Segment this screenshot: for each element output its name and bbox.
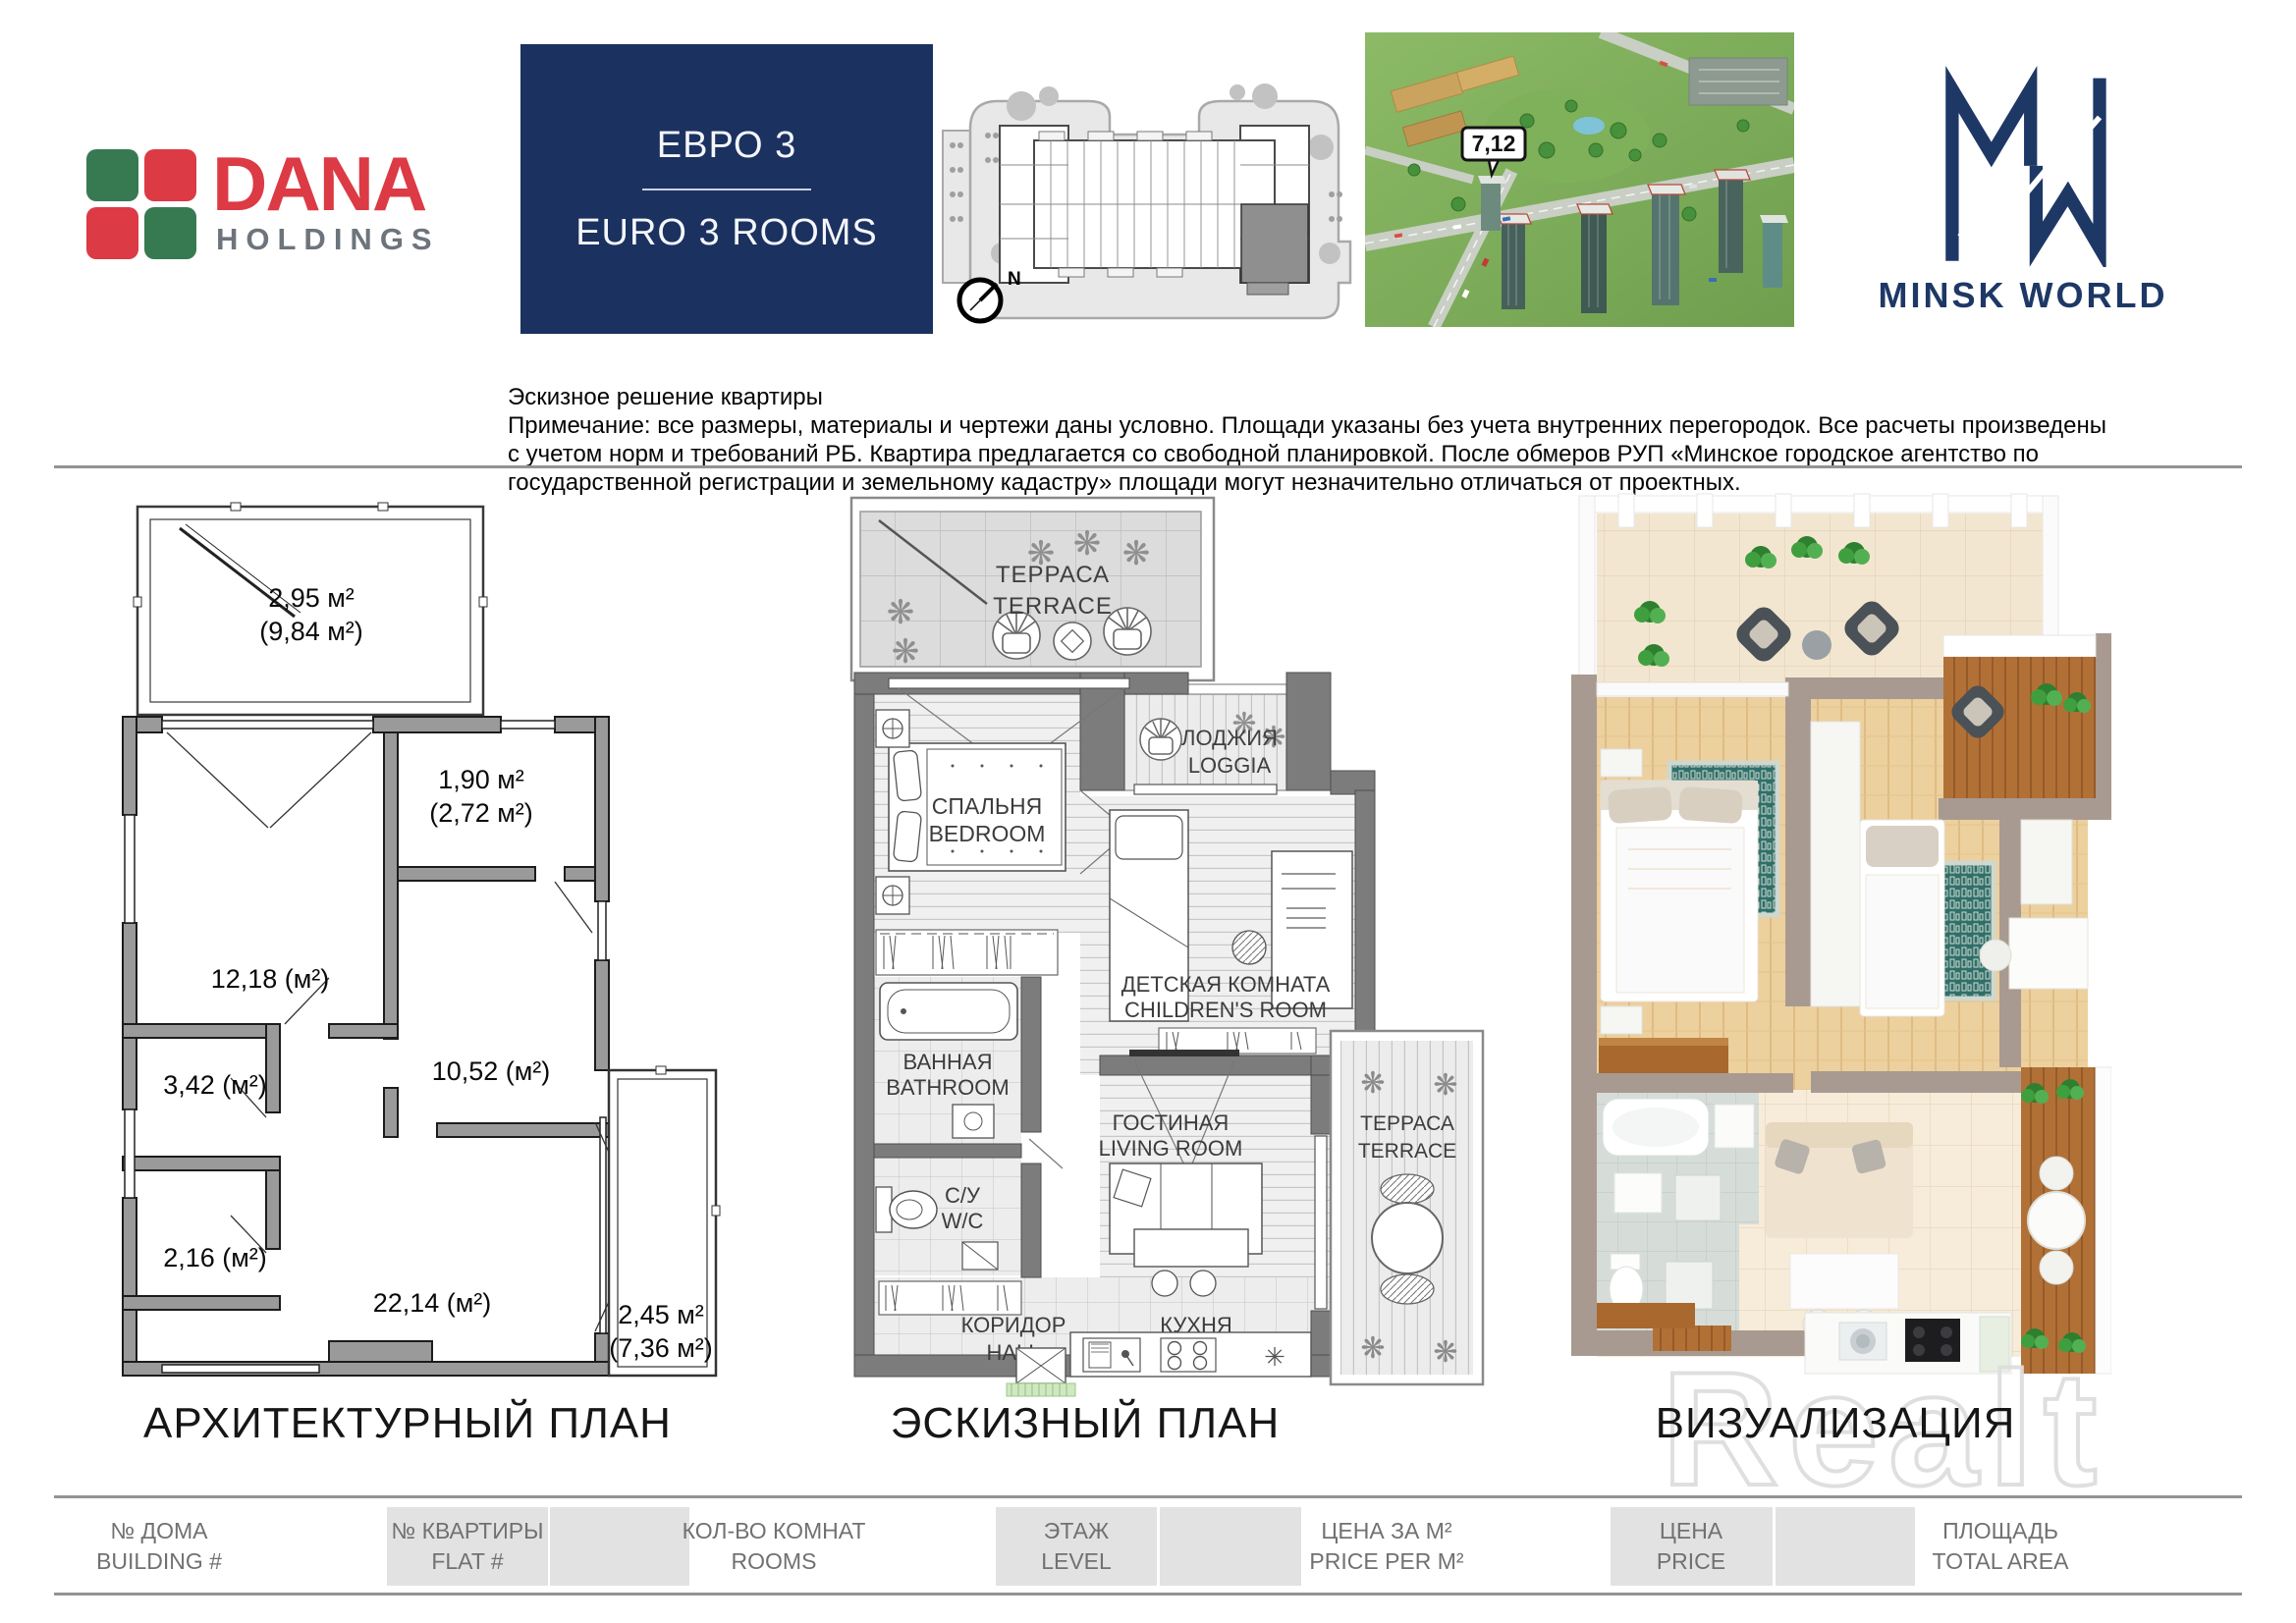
footer-field-building: № ДОМА BUILDING # (2, 1516, 316, 1577)
svg-text:❋: ❋ (892, 633, 920, 671)
disclaimer-line: Примечание: все размеры, материалы и чер… (508, 411, 2216, 440)
arch-windows (125, 721, 606, 1373)
highlighted-unit-balcony (1247, 283, 1288, 295)
footer-field-price-per-m2: ЦЕНА ЗА М² PRICE PER M² (1230, 1516, 1544, 1577)
viz-bathroom (1597, 1093, 1759, 1330)
sketch-terrace-top: ❋❋❋❋❋ ТЕРРАСА TERRACE (851, 498, 1214, 680)
label-children-ru: ДЕТСКАЯ КОМНАТА (1121, 972, 1331, 997)
footer-field-level-en: LEVEL (919, 1546, 1233, 1577)
label-living-en: LIVING ROOM (1099, 1136, 1243, 1161)
bedroom-window (889, 678, 1129, 688)
dana-logo-squares-icon (86, 149, 196, 259)
area-loggia-value: 1,90 м² (438, 765, 524, 794)
terrace-table-icon (1054, 622, 1091, 660)
unit-type-divider (642, 189, 811, 190)
header-divider (54, 465, 2242, 468)
area-children: 10,52 (м²) (432, 1056, 551, 1086)
area-loggia-total: (2,72 м²) (429, 798, 533, 828)
disclaimer-line: с учетом норм и требований РБ. Квартира … (508, 440, 2216, 468)
label-terrace2-ru: ТЕРРАСА (1360, 1112, 1454, 1135)
area-terrace-value: 2,95 м² (268, 583, 355, 613)
logo-square-green (86, 149, 138, 201)
dana-wordmark: DANA (212, 139, 425, 229)
area-wc: 2,16 (м²) (163, 1243, 267, 1272)
footer-field-price-per-m2-en: PRICE PER M² (1230, 1546, 1544, 1577)
sketch-wardrobe (876, 930, 1058, 975)
svg-text:❋: ❋ (1360, 1067, 1385, 1100)
compass-north-label: N (1008, 269, 1021, 290)
minsk-world-wordmark: MINSK WORLD (1861, 275, 2185, 316)
minsk-world-monogram-icon (1932, 61, 2118, 267)
label-bathroom-ru: ВАННАЯ (903, 1050, 993, 1074)
viz-wardrobe (1811, 722, 1860, 1006)
label-bathroom-en: BATHROOM (886, 1075, 1009, 1100)
kitchen-terrace-door (1315, 1136, 1327, 1309)
sketch-plan: ❋❋❋❋❋ ТЕРРАСА TERRACE (805, 486, 1493, 1399)
area-terrace2-total: (7,36 м²) (609, 1333, 713, 1363)
footer-field-price-en: PRICE (1534, 1546, 1848, 1577)
svg-text:❋: ❋ (1433, 1336, 1457, 1369)
fridge-icon: ✳ (1264, 1342, 1285, 1372)
aerial-photo: 7,12 (1365, 32, 1794, 327)
arch-walls (123, 717, 609, 1376)
caption-sketch-plan: ЭСКИЗНЫЙ ПЛАН (805, 1399, 1365, 1448)
svg-text:❋: ❋ (1122, 535, 1151, 572)
tv-icon (1129, 1050, 1239, 1056)
floor-overview-plan: N (941, 37, 1368, 337)
footer-rule-bottom (54, 1593, 2242, 1596)
sketch-terrace-right: ❋❋❋❋ ТЕРРАСА TERRACE (1331, 1031, 1483, 1384)
footer-field-flat: № КВАРТИРЫ FLAT # (310, 1516, 625, 1577)
logo-square-red (144, 149, 196, 201)
label-loggia-ru: ЛОДЖИЯ (1181, 726, 1278, 750)
svg-text:❋: ❋ (1360, 1332, 1385, 1365)
label-bedroom-ru: СПАЛЬНЯ (932, 793, 1042, 819)
footer-field-price-per-m2-ru: ЦЕНА ЗА М² (1230, 1516, 1544, 1546)
stove-icon (1161, 1338, 1216, 1372)
label-children-en: CHILDREN'S ROOM (1124, 998, 1327, 1022)
label-terrace2-en: TERRACE (1358, 1140, 1456, 1163)
footer-field-rooms-ru: КОЛ-ВО КОМНАТ (617, 1516, 931, 1546)
footer-field-rooms: КОЛ-ВО КОМНАТ ROOMS (617, 1516, 931, 1577)
area-terrace-total: (9,84 м²) (259, 617, 363, 646)
area-terrace2-value: 2,45 м² (618, 1300, 704, 1329)
unit-type-ru: ЕВРО 3 (657, 125, 796, 167)
label-bedroom-en: BEDROOM (929, 821, 1046, 846)
label-wc-ru: С/У (945, 1183, 981, 1208)
logo-square-green (144, 207, 196, 259)
footer-field-building-ru: № ДОМА (2, 1516, 316, 1546)
footer-field-building-en: BUILDING # (2, 1546, 316, 1577)
unit-type-en: EURO 3 ROOMS (575, 212, 878, 254)
dana-holdings-text: HOLDINGS (216, 222, 440, 257)
footer-field-level-ru: ЭТАЖ (919, 1516, 1233, 1546)
footer-field-level: ЭТАЖ LEVEL (919, 1516, 1233, 1577)
visualization-render (1559, 486, 2111, 1378)
area-bedroom: 12,18 (м²) (211, 964, 330, 994)
logo-square-red (86, 207, 138, 259)
footer-field-flat-en: FLAT # (310, 1546, 625, 1577)
architectural-plan: 2,95 м² (9,84 м²) 1,90 м² (2,72 м²) 12,1… (93, 489, 722, 1387)
caption-visualization: ВИЗУАЛИЗАЦИЯ (1559, 1399, 2111, 1448)
minsk-world-logo: MINSK WORLD (1861, 61, 2185, 316)
brochure-page: DANA HOLDINGS ЕВРО 3 EURO 3 ROOMS (0, 0, 2296, 1623)
pond (1573, 117, 1605, 135)
area-living: 22,14 (м²) (373, 1288, 492, 1318)
label-loggia-en: LOGGIA (1188, 753, 1272, 778)
footer-field-total-area-en: TOTAL AREA (1843, 1546, 2158, 1577)
svg-text:❋: ❋ (1073, 525, 1102, 563)
disclaimer-text: Эскизное решение квартиры Примечание: вс… (508, 383, 2216, 497)
label-terrace-ru: ТЕРРАСА (996, 562, 1110, 588)
viz-loggia (1943, 635, 2096, 798)
label-hall-ru: КОРИДОР (961, 1313, 1066, 1337)
svg-text:❋: ❋ (887, 594, 915, 631)
dana-holdings-logo: DANA HOLDINGS (86, 145, 519, 273)
unit-type-box: ЕВРО 3 EURO 3 ROOMS (520, 44, 933, 334)
label-living-ru: ГОСТИНАЯ (1113, 1110, 1230, 1135)
svg-text:❋: ❋ (1433, 1069, 1457, 1102)
area-bathroom: 3,42 (м²) (163, 1070, 267, 1100)
footer-field-rooms-en: ROOMS (617, 1546, 931, 1577)
footer-field-flat-ru: № КВАРТИРЫ (310, 1516, 625, 1546)
building-badge-text: 7,12 (1472, 131, 1516, 156)
label-wc-en: W/C (942, 1209, 984, 1233)
disclaimer-line: Эскизное решение квартиры (508, 383, 2216, 411)
label-terrace-en: TERRACE (993, 593, 1113, 620)
viz-bedroom-window (1597, 682, 1788, 696)
caption-architectural-plan: АРХИТЕКТУРНЫЙ ПЛАН (93, 1399, 722, 1448)
highlighted-unit (1241, 204, 1308, 283)
